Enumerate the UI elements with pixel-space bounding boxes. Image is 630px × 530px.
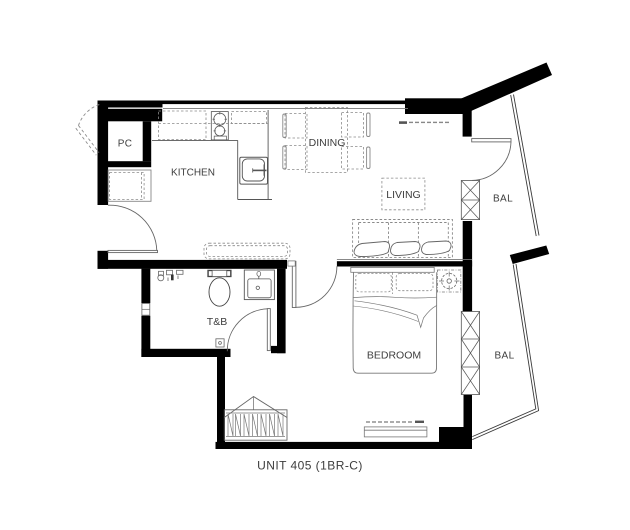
svg-text:DINING: DINING xyxy=(309,137,346,149)
svg-text:KITCHEN: KITCHEN xyxy=(171,168,215,179)
svg-text:PC: PC xyxy=(118,139,133,150)
svg-text:LIVING: LIVING xyxy=(386,189,420,201)
svg-text:BAL: BAL xyxy=(493,194,513,205)
svg-text:T&B: T&B xyxy=(207,316,227,328)
svg-text:BAL: BAL xyxy=(494,351,514,362)
svg-text:BEDROOM: BEDROOM xyxy=(367,350,421,362)
svg-text:UNIT 405 (1BR-C): UNIT 405 (1BR-C) xyxy=(257,459,363,473)
